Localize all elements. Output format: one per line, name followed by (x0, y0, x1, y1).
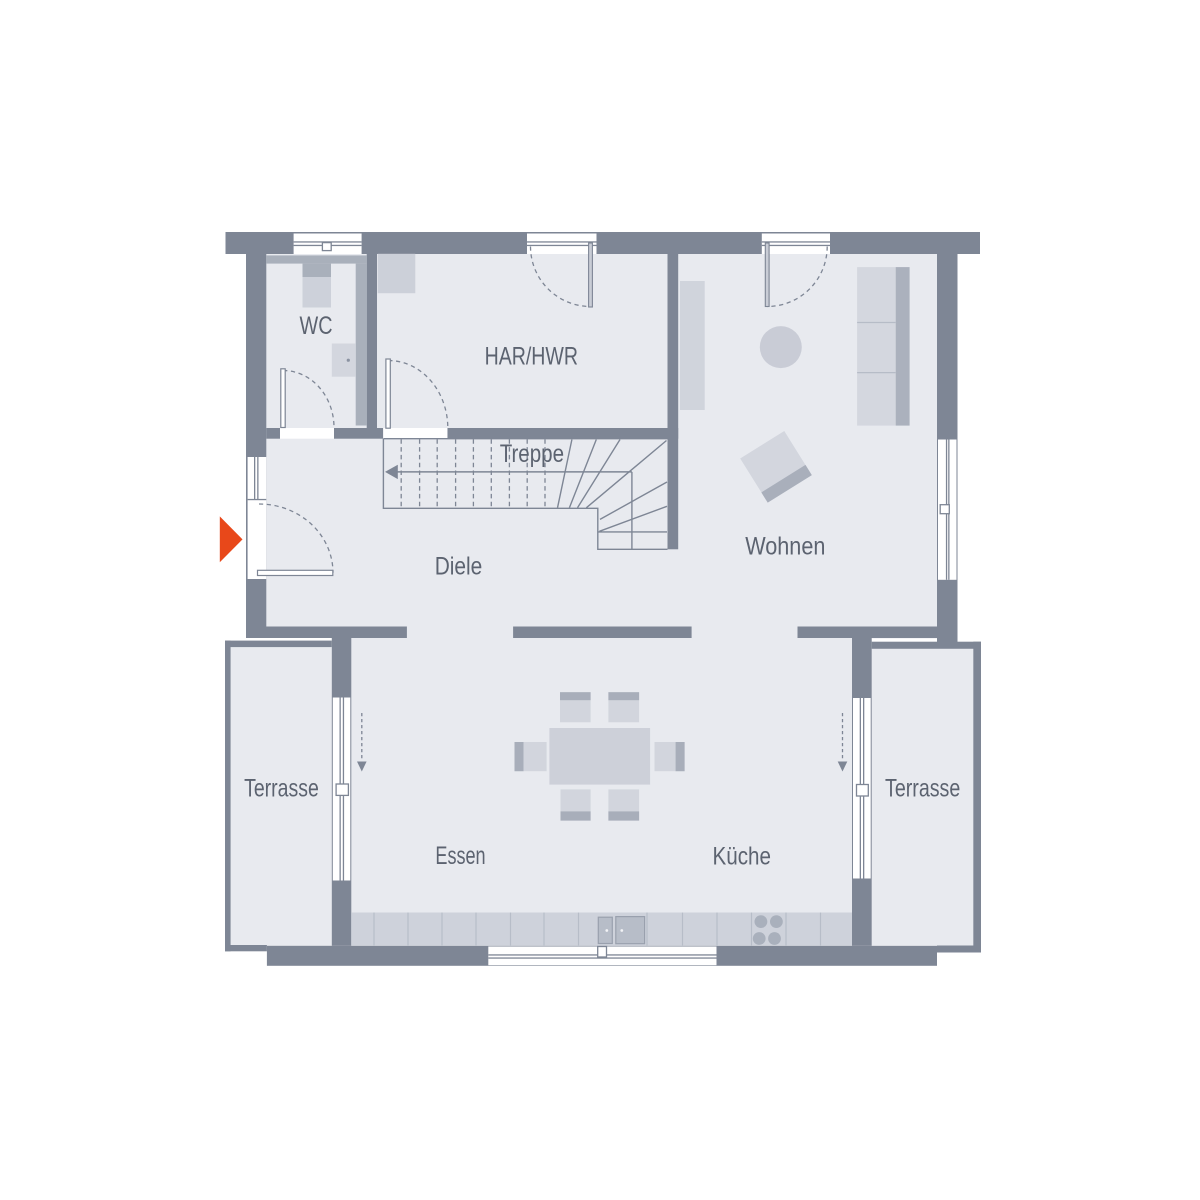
svg-text:Essen: Essen (435, 842, 485, 870)
svg-text:Küche: Küche (713, 842, 771, 870)
svg-text:Diele: Diele (435, 552, 483, 580)
svg-text:HAR/HWR: HAR/HWR (485, 343, 578, 371)
svg-text:Treppe: Treppe (500, 440, 564, 468)
svg-text:Terrasse: Terrasse (885, 775, 960, 803)
svg-text:Wohnen: Wohnen (745, 533, 825, 561)
svg-text:WC: WC (300, 312, 333, 340)
svg-text:Terrasse: Terrasse (244, 775, 319, 803)
